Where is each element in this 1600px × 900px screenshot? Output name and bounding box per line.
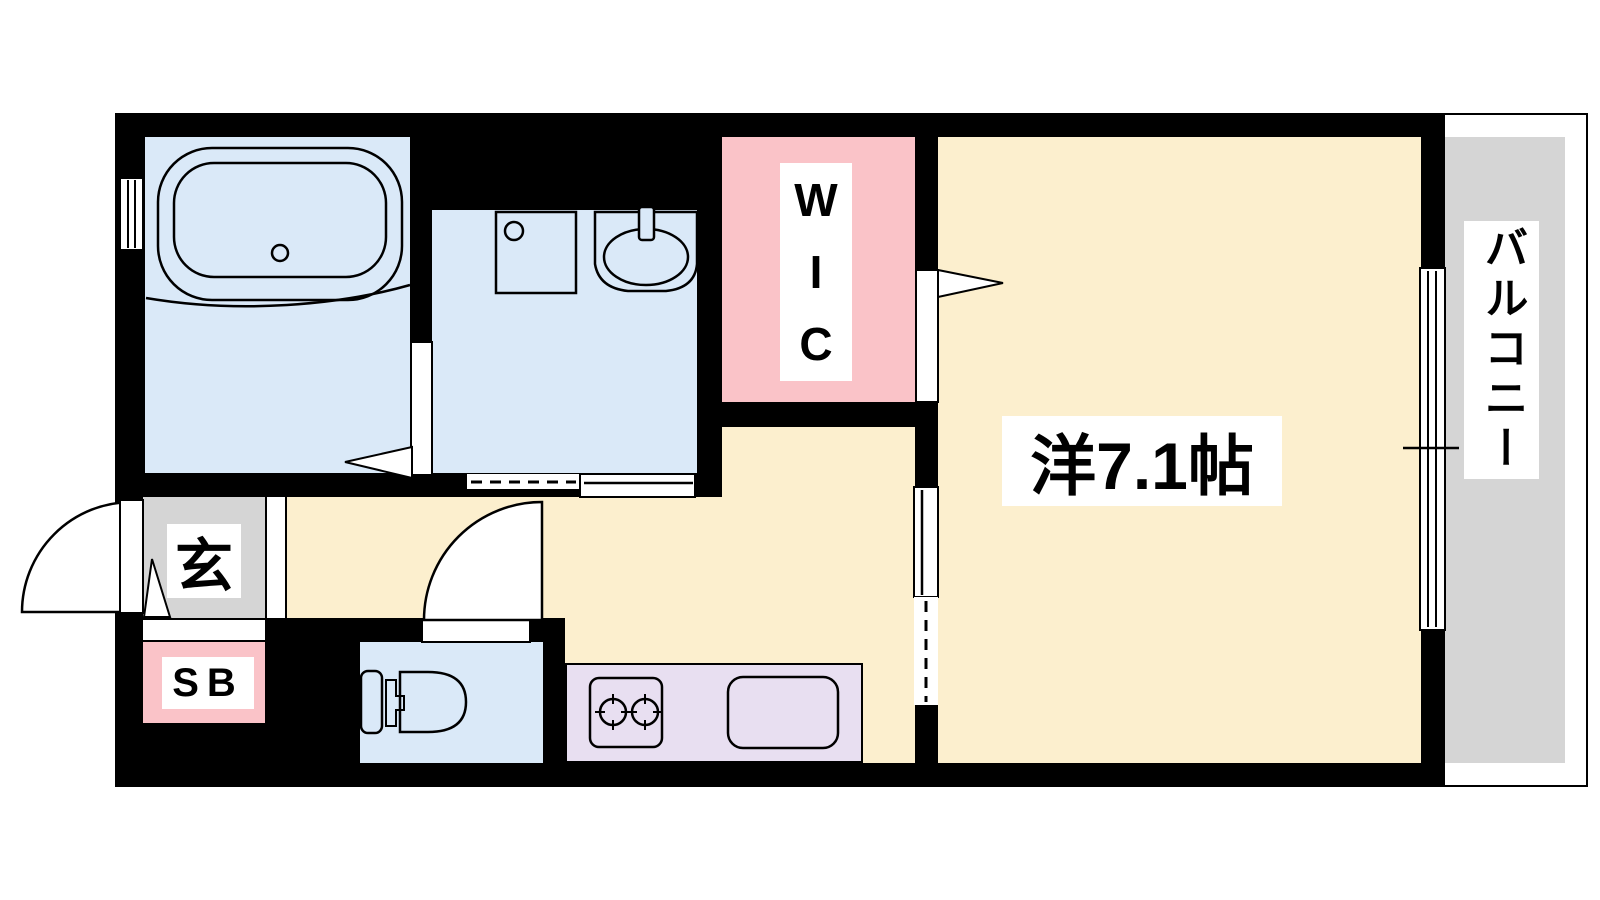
- hallway-area: [565, 618, 915, 663]
- kitchen-counter: [565, 663, 863, 763]
- hallway-area: [863, 663, 915, 763]
- floor-plan: W I C 玄 SB 洋7.1帖 バルコニー: [0, 0, 1600, 900]
- entrance-sill: [265, 497, 287, 618]
- main-room-label: 洋7.1帖: [1002, 416, 1282, 506]
- balcony-label: バルコニー: [1464, 221, 1539, 479]
- toilet-area: [360, 642, 543, 763]
- hallway-area: [722, 427, 915, 497]
- washroom-area: [432, 210, 697, 473]
- entrance-label: 玄: [167, 524, 241, 598]
- wic-label: W I C: [780, 163, 852, 381]
- shoebox-label: SB: [162, 657, 254, 709]
- hallway-area: [287, 497, 915, 618]
- bathroom-area: [145, 137, 410, 473]
- entrance-step: [143, 618, 265, 642]
